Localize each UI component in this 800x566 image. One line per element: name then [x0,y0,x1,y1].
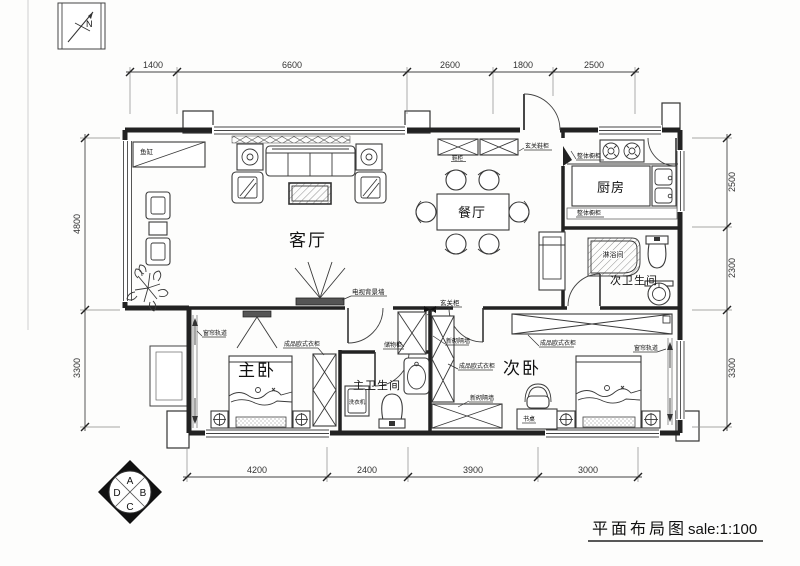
washing-machine-label: 洗衣机 [349,398,366,406]
drawing-title: 平面布局图 [592,520,687,538]
plant [127,265,168,311]
dim-top-4: 1800 [513,60,533,70]
dim-top-3: 2600 [440,60,460,70]
dim-top-1: 1400 [143,60,163,70]
entry-cabinet-label: 玄关柜 [440,298,460,307]
shoe-cabinets: 鞋柜 玄关鞋柜 [438,139,552,162]
north-label: N [86,19,93,29]
second-bed [576,356,641,428]
master-wardrobe-label: 成品欧式衣柜 [284,340,320,348]
elevation-letter-d: D [113,488,120,499]
second-wardrobe-bottom [432,404,502,428]
dim-right-2: 2300 [727,258,737,278]
room-label-master-bath: 主卫生间 [353,378,401,392]
dining-room: 鞋柜 玄关鞋柜 餐厅 [416,139,552,254]
dim-left-2: 3300 [72,358,82,378]
armchair-left [232,172,263,203]
side-table-right [356,144,382,170]
nightstand [642,411,660,428]
shoe-cabinet-label: 鞋柜 [452,154,464,162]
second-bedroom: 新砌隔墙 新砌隔墙 成品欧式衣柜 成品欧式衣柜 书桌 [432,314,673,429]
sofa [266,146,355,176]
room-label-second-bath: 次卫生间 [610,273,658,287]
room-label-second-bedroom: 次卧 [503,359,541,378]
kitchen-cabinet-bottom-label: 整体橱柜 [577,209,601,217]
hallway-door [348,308,383,343]
kitchen-door-wedge [563,146,572,166]
tv-wall-label: 电视背景墙 [352,287,385,296]
second-wardrobe-top-label: 成品欧式衣柜 [540,339,576,347]
entry-shoe-cabinet-label: 玄关鞋柜 [525,142,549,150]
room-label-living: 客厅 [289,231,327,250]
dimension-bottom: 4200 2400 3900 3000 [183,447,642,482]
floor-plan-drawing: N [0,0,800,566]
elevation-letter-c: C [126,502,133,513]
kitchen-door [648,138,676,166]
storage-cabinet-label: 储物柜 [384,341,402,349]
coffee-table [289,183,331,204]
master-tv [237,311,277,348]
elevation-marker: A B C D [98,460,162,524]
room-label-master-bedroom: 主卧 [238,361,276,380]
dimension-left: 4800 3300 [72,134,120,431]
nightstand [293,411,310,428]
second-wardrobe-left [432,316,454,402]
master-wardrobe [313,354,336,426]
master-bedroom: 窗帘轨道 [192,311,336,428]
second-bath-door [568,274,600,306]
shower-label: 淋浴间 [603,250,624,259]
dimension-top: 1400 6600 2600 1800 2500 [126,60,639,114]
dim-bottom-3: 3900 [463,465,483,475]
tv-unit [295,262,345,305]
armchair-right [355,172,386,203]
curtain-box-band [232,136,350,143]
new-wall-top-label: 新砌隔墙 [446,337,470,345]
drawing-scale: sale:1:100 [688,521,757,538]
desk-chair [525,384,551,408]
dim-top-2: 6600 [282,60,302,70]
dim-right-1: 2500 [727,172,737,192]
fish-tank-cabinet: 鱼缸 [133,142,205,167]
floor-plan-canvas: { "title": { "name": "平面布局图", "scale": "… [0,0,800,566]
desk-label: 书桌 [523,415,535,423]
elevation-letter-b: B [140,488,147,499]
living-room: 电视背景墙 客厅 [232,144,387,305]
second-wardrobe-top [512,314,672,334]
fridge [539,232,565,290]
title-block: 平面布局图 sale:1:100 [588,520,763,541]
dim-bottom-4: 3000 [578,465,598,475]
dim-top-5: 2500 [584,60,604,70]
kitchen: 厨房 整体橱柜 整体橱柜 [567,140,678,219]
washbasin-master-bath [404,358,429,394]
room-label-dining: 餐厅 [458,205,486,220]
side-table-left [237,144,263,170]
toilet-master-bath [379,394,405,428]
curtain-track-right [667,338,673,425]
kitchen-sink [652,166,676,206]
nightstand [557,411,575,428]
nightstand [211,411,228,428]
master-bathroom: 洗衣机 主卫生间 [345,358,429,428]
dim-bottom-2: 2400 [357,465,377,475]
balcony-chairs [146,192,170,265]
toilet-second-bath [646,236,668,268]
kitchen-cabinet-top-label: 整体橱柜 [577,152,601,160]
second-wardrobe-left-label: 成品欧式衣柜 [459,362,495,370]
stove [600,140,644,162]
room-label-kitchen: 厨房 [597,180,625,195]
dimension-right: 2500 2300 3300 [692,134,737,431]
fish-tank-label: 鱼缸 [140,147,154,156]
entry-door [524,94,560,130]
elevation-letter-a: A [127,476,134,487]
desk: 书桌 [517,409,557,429]
north-arrow: N [58,3,105,49]
curtain-track-left-label: 窗帘轨道 [203,329,227,337]
dim-bottom-1: 4200 [247,465,267,475]
curtain-track-right-label: 窗帘轨道 [634,344,658,352]
dim-right-3: 3300 [727,358,737,378]
dim-left-1: 4800 [72,214,82,234]
new-wall-bottom-label: 新砌隔墙 [470,394,494,402]
bay-window [150,346,188,406]
curtain-track-left [192,315,198,428]
